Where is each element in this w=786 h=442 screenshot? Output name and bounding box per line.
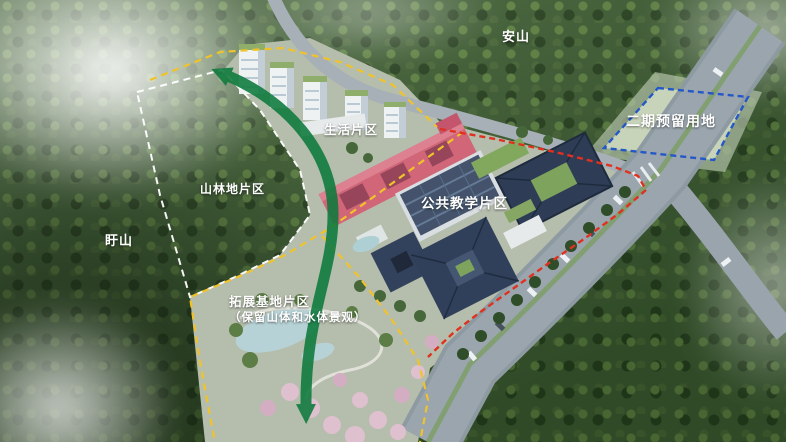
label-forest-zone: 山林地片区 [200, 181, 265, 197]
label-teaching-zone: 公共教学片区 [421, 195, 508, 213]
label-xushan-mountain: 盱山 [105, 232, 133, 250]
label-expansion-zone-note: （保留山体和水体景观） [229, 311, 367, 327]
label-phase2-reserved-land: 二期预留用地 [626, 112, 716, 131]
label-expansion-zone-title: 拓展基地片区 [229, 294, 367, 311]
masterplan-aerial-rendering: 安山 二期预留用地 生活片区 山林地片区 盱山 公共教学片区 拓展基地片区 （保… [0, 0, 786, 442]
label-anshan-mountain: 安山 [502, 28, 530, 46]
masterplan-overlay [0, 0, 786, 442]
label-expansion-zone: 拓展基地片区 （保留山体和水体景观） [229, 294, 367, 326]
label-living-zone: 生活片区 [324, 122, 378, 139]
